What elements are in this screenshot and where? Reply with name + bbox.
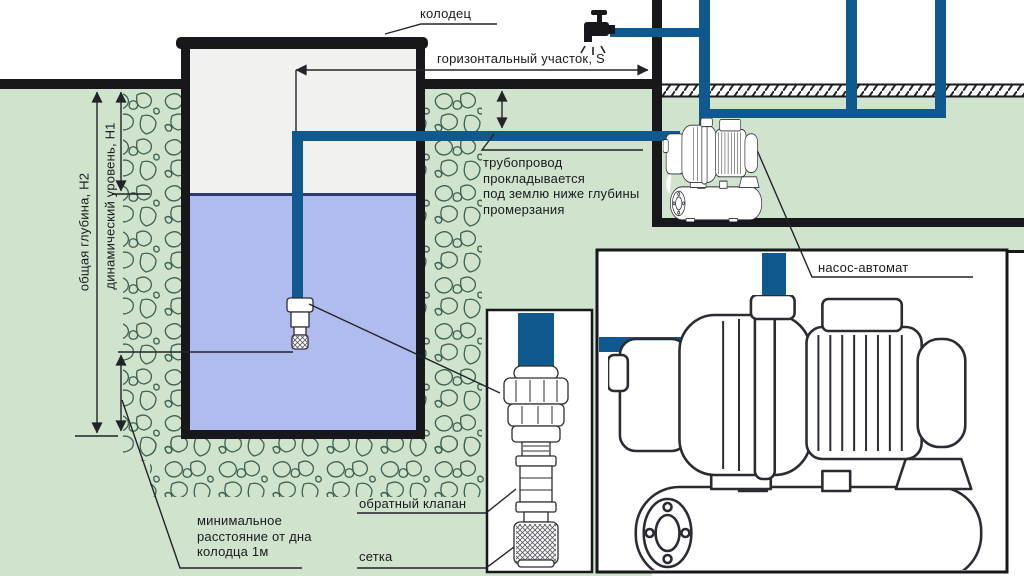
diagram-stage: колодец горизонтальный участок, S трубоп… xyxy=(0,0,1024,576)
basement-distribution-pipe xyxy=(699,109,946,118)
house-riser-3 xyxy=(935,0,946,116)
pump-station-large xyxy=(608,295,1004,570)
check-valve-drawing xyxy=(516,456,556,512)
house-floor-hatch xyxy=(662,85,1024,97)
house-riser-1 xyxy=(699,0,710,126)
faucet-branch-pipe xyxy=(610,28,702,37)
label-pump-station: насос-автомат xyxy=(818,260,908,276)
label-check-valve: обратный клапан xyxy=(359,496,466,512)
label-horizontal-section: горизонтальный участок, S xyxy=(437,51,605,67)
label-dynamic-level: динамический уровень, Н1 xyxy=(102,122,118,289)
ground-surface-right xyxy=(422,79,655,89)
pump-detail-clip xyxy=(600,253,1004,570)
well-cap xyxy=(176,37,428,49)
label-min-distance: минимальное расстояние от дна колодца 1м xyxy=(197,513,312,560)
house-riser-2 xyxy=(846,0,857,116)
label-well: колодец xyxy=(420,6,471,22)
assembly-pipe xyxy=(518,313,554,370)
well-drop-pipe xyxy=(292,136,303,298)
label-pipeline-note: трубопровод прокладывается под землю ниж… xyxy=(483,155,639,217)
faucet-icon xyxy=(581,10,615,55)
ground-surface-left xyxy=(0,79,183,89)
pump-station-small xyxy=(663,118,768,222)
label-strainer: сетка xyxy=(359,549,392,565)
underground-supply-pipe xyxy=(292,131,680,141)
leader-well xyxy=(385,24,497,34)
label-total-depth: общая глубина, Н2 xyxy=(76,173,92,291)
